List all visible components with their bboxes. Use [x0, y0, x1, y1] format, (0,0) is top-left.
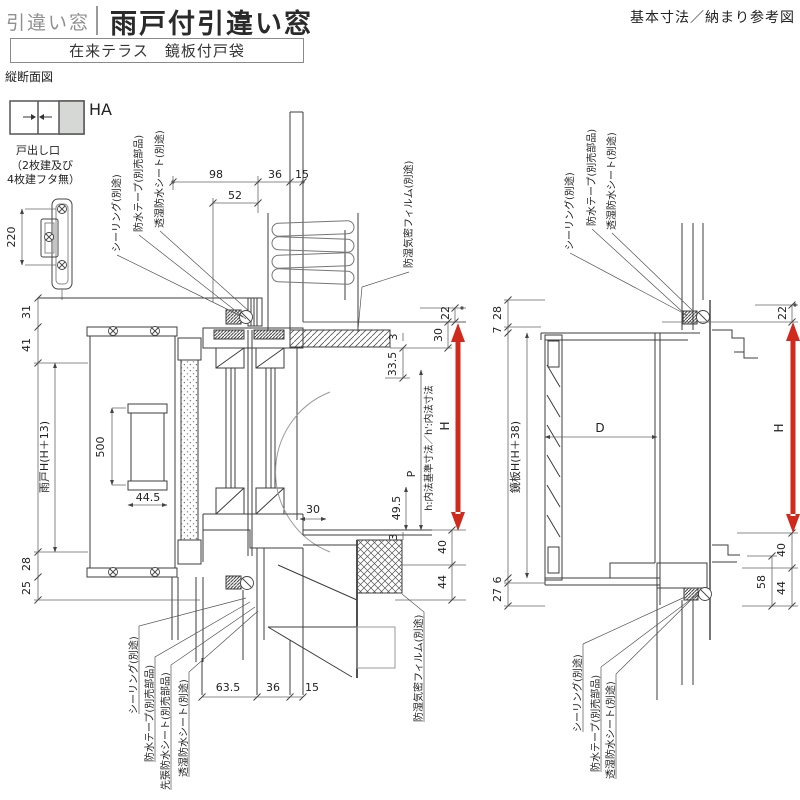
dim-label: 49.5: [390, 496, 403, 521]
callout-label: 透湿防水シート(別途): [177, 679, 190, 777]
dim-label: 雨戸H(H＋13): [38, 421, 51, 493]
height-arrow-label: H: [772, 423, 786, 432]
callout-label: シーリング(別途): [127, 636, 140, 714]
sealing-hatch-bottom: [684, 588, 698, 600]
dim-label: 6: [491, 577, 504, 584]
callout-label: シーリング(別途): [110, 174, 123, 252]
dim-label: 3: [387, 334, 400, 341]
dim-label: 500: [94, 437, 107, 458]
dim-label: 鏡板H(H＋38): [508, 421, 522, 493]
dim-label: 27: [491, 588, 504, 602]
callout-label: 透湿防水シート(別途): [604, 681, 617, 779]
window-type-icon: [10, 101, 84, 134]
height-arrow-left: [451, 323, 465, 531]
depth-dim-label: D: [595, 421, 604, 435]
callout-label: 透湿防水シート(別途): [153, 130, 166, 228]
shutter-case-board: [545, 335, 562, 580]
dim-label: 30: [306, 503, 320, 516]
dim-label: 44.5: [136, 491, 161, 504]
callout-label: 防湿気密フィルム(別途): [412, 614, 425, 722]
insulation-batt: [272, 221, 354, 285]
right-callout-leaders: [570, 229, 697, 779]
callout-label: 先張防水シート(別売部品): [159, 672, 172, 790]
right-section-structure: [541, 223, 758, 700]
callout-label: 防水テープ(別売部品): [585, 129, 598, 226]
right-callout-labels: シーリング(別途) 防水テープ(別売部品) 透湿防水シート(別途) シーリング(…: [563, 129, 618, 779]
dim-label: 22: [776, 306, 789, 320]
height-arrow-right: [786, 322, 800, 533]
sash-section: [203, 328, 330, 556]
dim-label: 31: [20, 305, 33, 319]
inner-dim-note: h:内法基準寸法／h':内法寸法: [423, 385, 435, 511]
dim-label: 36: [268, 168, 282, 181]
legend-caption-3: 4枚建フタ無）: [7, 172, 80, 186]
callout-label: シーリング(別途): [563, 172, 576, 250]
left-dimension-labels: 98 52 36 15 31 41 雨戸H(H＋13) 28 25 500 44…: [20, 168, 452, 694]
dim-label: 52: [228, 189, 242, 202]
head-clips: [712, 330, 758, 358]
dim-label: 7: [491, 327, 504, 334]
kagamiita-panel: [181, 360, 198, 540]
legend-caption-2: （2枚建及び: [11, 158, 73, 172]
height-arrow-label: H: [438, 421, 452, 430]
dim-label: 30: [432, 328, 445, 342]
callout-label: 防水テープ(別売部品): [589, 675, 602, 772]
dim-label: P: [405, 470, 418, 477]
callout-label: 防水テープ(別売部品): [132, 135, 145, 232]
dim-label: 98: [209, 168, 223, 181]
lintel-hatch: [290, 330, 390, 347]
dim-label: 28: [20, 557, 33, 571]
callout-label: 防水テープ(別売部品): [143, 665, 156, 762]
legend-caption-1: 戸出し口: [16, 143, 60, 157]
dim-label: 3: [387, 534, 400, 541]
sill-clips: [712, 545, 740, 562]
shutter-pull: [128, 404, 167, 490]
dim-label: 44: [436, 575, 449, 589]
dim-label: 22: [439, 306, 452, 320]
dim-label: 36: [266, 681, 280, 694]
dim-label: 58: [755, 575, 768, 589]
dim-label: 15: [295, 168, 309, 181]
dim-label: 41: [20, 338, 33, 352]
dim-pull-pitch: 220: [5, 227, 18, 248]
left-section-structure: [38, 112, 466, 695]
drawing-sheet: 引違い窓 雨戸付引違い窓 在来テラス 鏡板付戸袋 基本寸法／納まり参考図 縦断面…: [0, 0, 800, 800]
callout-label: シーリング(別途): [571, 654, 584, 732]
dim-label: 25: [20, 581, 33, 595]
callout-label: 透湿防水シート(別途): [605, 132, 618, 230]
dim-label: 63.5: [216, 681, 241, 694]
callout-label: 防湿気密フィルム(別途): [402, 160, 415, 268]
dim-label: 40: [775, 543, 788, 557]
dim-label: 33.5: [386, 352, 399, 377]
pull-handle-detail: [22, 199, 72, 300]
dim-label: 40: [436, 540, 449, 554]
dim-label: 44: [775, 581, 788, 595]
section-drawing-canvas: HA 戸出し口 （2枚建及び 4枚建フタ無） 220: [0, 0, 800, 800]
icon-code-label: HA: [89, 100, 112, 119]
dim-label: 15: [305, 681, 319, 694]
dim-label: 28: [491, 306, 504, 320]
